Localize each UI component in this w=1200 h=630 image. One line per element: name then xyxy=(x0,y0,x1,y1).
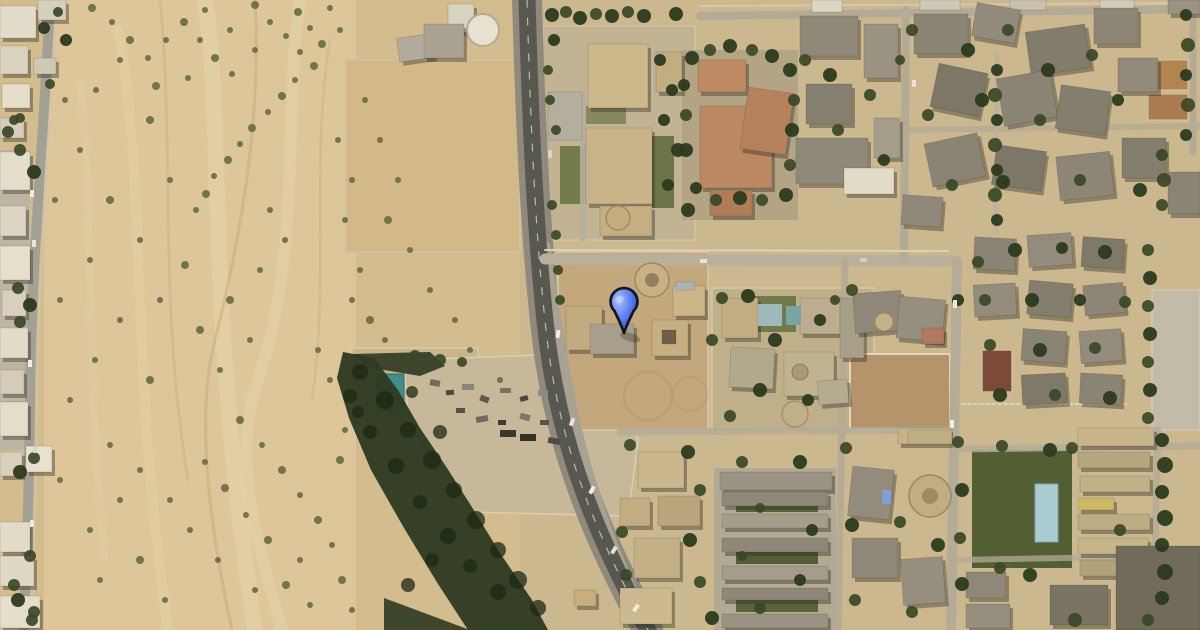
building xyxy=(740,87,794,155)
building xyxy=(620,588,672,624)
desert-shrub xyxy=(211,54,219,62)
building xyxy=(424,24,464,58)
desert-shrub xyxy=(181,261,189,269)
ground-object xyxy=(498,420,506,425)
tennis-court xyxy=(982,350,1012,392)
building xyxy=(722,538,828,552)
ground-object xyxy=(912,80,916,87)
tree xyxy=(783,63,797,77)
satellite-imagery xyxy=(0,0,1200,630)
building xyxy=(34,58,56,74)
building xyxy=(729,347,775,389)
tree xyxy=(1143,327,1157,341)
desert-shrub xyxy=(327,377,333,383)
tree xyxy=(1155,538,1169,552)
tree xyxy=(573,11,587,25)
desert-shrub xyxy=(327,5,333,11)
ground-object xyxy=(456,408,465,413)
desert-shrub xyxy=(197,37,203,43)
building xyxy=(1021,373,1067,405)
tree xyxy=(906,24,918,36)
tree xyxy=(1157,564,1173,580)
desert-shrub xyxy=(117,317,123,323)
building xyxy=(574,590,596,606)
tree xyxy=(1068,613,1082,627)
desert-shrub xyxy=(349,297,355,303)
tree xyxy=(1142,412,1154,424)
tree xyxy=(28,452,40,464)
building xyxy=(900,557,945,606)
tree xyxy=(840,442,852,454)
building xyxy=(0,152,30,190)
desert-shrub xyxy=(310,62,318,70)
desert-shrub xyxy=(377,137,383,143)
desert-shrub xyxy=(117,497,123,503)
building xyxy=(1078,514,1150,530)
building xyxy=(1094,8,1138,44)
grove-canopy xyxy=(490,584,506,600)
ground-object xyxy=(860,258,867,262)
tree xyxy=(694,484,706,496)
desert-shrub xyxy=(342,217,348,223)
tree xyxy=(846,284,858,296)
grove-canopy xyxy=(490,542,506,558)
desert-shrub xyxy=(497,377,503,383)
tree xyxy=(1008,243,1022,257)
building xyxy=(722,588,828,600)
building xyxy=(634,538,680,578)
tree xyxy=(681,203,695,217)
building xyxy=(817,379,849,405)
desert-shrub xyxy=(217,367,223,373)
tree xyxy=(1049,389,1061,401)
building xyxy=(0,246,30,280)
building xyxy=(800,16,858,56)
tree xyxy=(12,282,24,294)
tree xyxy=(1025,293,1039,307)
grove-canopy xyxy=(352,406,364,418)
satellite-map-canvas[interactable] xyxy=(0,0,1200,630)
tree xyxy=(724,410,736,422)
desert-shrub xyxy=(157,297,163,303)
building xyxy=(658,496,700,526)
grove-canopy xyxy=(376,391,394,409)
building xyxy=(1056,151,1114,200)
tree xyxy=(1074,294,1086,306)
building xyxy=(1078,428,1154,446)
tree xyxy=(993,388,1007,402)
desert-shrub xyxy=(227,27,233,33)
desert-shrub xyxy=(382,337,388,343)
tree xyxy=(1023,568,1037,582)
tree xyxy=(1133,183,1147,197)
building xyxy=(722,492,828,506)
tree xyxy=(975,93,989,107)
desert-shrub xyxy=(335,137,341,143)
tree xyxy=(741,289,755,303)
tree xyxy=(1098,245,1112,259)
hotel-dome xyxy=(606,206,630,230)
tree xyxy=(551,125,561,135)
tree xyxy=(690,182,702,194)
tree xyxy=(666,84,678,96)
building xyxy=(914,14,968,54)
building xyxy=(0,522,30,552)
tree xyxy=(1033,343,1047,357)
ground-object xyxy=(540,420,549,425)
tree xyxy=(736,456,748,468)
desert-shrub xyxy=(97,577,103,583)
building xyxy=(1055,85,1111,136)
tree xyxy=(45,79,55,89)
building xyxy=(1168,172,1200,214)
tree xyxy=(14,316,26,328)
desert-shrub xyxy=(237,141,243,147)
desert-shrub xyxy=(384,216,392,224)
desert-shrub xyxy=(211,173,217,179)
tree xyxy=(1155,485,1169,499)
tree xyxy=(1181,38,1195,52)
tree xyxy=(955,483,969,497)
round-plaza-core xyxy=(922,488,938,504)
desert-shrub xyxy=(187,527,193,533)
building xyxy=(966,572,1006,598)
tree xyxy=(680,109,692,121)
building xyxy=(620,498,650,526)
desert-shrub xyxy=(193,207,199,213)
desert-shrub xyxy=(349,177,355,183)
grove-canopy xyxy=(446,482,462,498)
tree xyxy=(788,94,800,106)
tree xyxy=(23,298,37,312)
tree xyxy=(753,383,767,397)
tree xyxy=(723,39,737,53)
building xyxy=(864,24,898,78)
tree xyxy=(1074,174,1086,186)
ground-object xyxy=(953,300,957,308)
tree xyxy=(1157,510,1173,526)
tree xyxy=(1157,457,1173,473)
tree xyxy=(1142,244,1154,256)
tree xyxy=(545,95,555,105)
tree xyxy=(710,194,722,206)
tree xyxy=(961,43,975,57)
tree xyxy=(954,532,966,544)
tree xyxy=(622,6,634,18)
tree xyxy=(754,602,766,614)
tree xyxy=(1180,69,1192,81)
tree xyxy=(814,314,826,326)
desert-shrub xyxy=(146,376,154,384)
tree xyxy=(543,65,553,75)
tree xyxy=(823,68,837,82)
desert-shrub xyxy=(292,77,298,83)
tree xyxy=(60,34,72,46)
tree xyxy=(984,339,996,351)
grove-canopy xyxy=(423,451,441,469)
tree xyxy=(996,175,1010,189)
building xyxy=(1116,546,1200,630)
desert-shrub xyxy=(259,442,265,448)
desert-shrub xyxy=(467,347,473,353)
building xyxy=(676,282,694,290)
tree xyxy=(784,159,796,171)
desert-shrub xyxy=(265,109,271,115)
tree xyxy=(658,114,670,126)
desert-shrub xyxy=(224,156,232,164)
building xyxy=(720,472,832,490)
pale-compound xyxy=(1152,290,1200,430)
building xyxy=(586,128,652,204)
grove-canopy xyxy=(401,578,415,592)
ground-object xyxy=(700,259,707,263)
tree xyxy=(694,576,706,588)
tree xyxy=(620,569,632,581)
tree xyxy=(669,7,683,21)
building xyxy=(844,168,894,194)
desert-shrub xyxy=(297,492,303,498)
ground-object xyxy=(500,388,511,393)
desert-shrub xyxy=(221,484,229,492)
tree xyxy=(637,9,651,23)
desert-shrub xyxy=(283,33,289,39)
desert-shrub xyxy=(137,467,143,473)
desert-shrub xyxy=(52,197,58,203)
desert-shrub xyxy=(126,36,134,44)
tree xyxy=(8,579,20,591)
mid-road xyxy=(545,259,950,261)
building xyxy=(698,60,746,92)
desert-shrub xyxy=(106,196,114,204)
tree xyxy=(1156,149,1168,161)
desert-shrub xyxy=(282,237,288,243)
desert-shrub xyxy=(109,19,115,25)
ground-object xyxy=(446,390,454,396)
tree xyxy=(24,550,36,562)
tree xyxy=(1142,356,1154,368)
desert-shrub xyxy=(342,427,348,433)
desert-shrub xyxy=(278,466,286,474)
building xyxy=(638,452,684,488)
tree xyxy=(590,8,602,20)
ground-object xyxy=(950,420,954,428)
building xyxy=(1083,282,1125,315)
building xyxy=(588,44,648,108)
tree xyxy=(1143,383,1157,397)
tree xyxy=(705,611,719,625)
desert-shrub xyxy=(318,40,326,48)
tree xyxy=(555,295,565,305)
desert-shrub xyxy=(162,597,168,603)
tree xyxy=(27,165,41,179)
tree xyxy=(1156,199,1168,211)
blue-structure xyxy=(882,490,891,504)
tree xyxy=(1119,296,1131,308)
building xyxy=(901,195,943,228)
tree xyxy=(806,524,818,536)
building xyxy=(0,6,36,38)
tree xyxy=(716,292,728,304)
tree xyxy=(1181,98,1195,112)
tree xyxy=(830,295,840,305)
desert-shrub xyxy=(329,542,335,548)
tree xyxy=(972,256,984,268)
desert-shrub xyxy=(267,207,273,213)
tree xyxy=(38,22,50,34)
ground-object xyxy=(30,520,34,527)
desert-shrub xyxy=(202,7,208,13)
tree xyxy=(662,179,674,191)
building xyxy=(662,330,676,344)
water-tank xyxy=(467,14,499,46)
ground-object xyxy=(520,434,536,441)
desert-shrub xyxy=(278,92,286,100)
building xyxy=(812,0,842,12)
tree xyxy=(793,455,807,469)
tree xyxy=(53,7,63,17)
desert-shrub xyxy=(87,257,93,263)
tree xyxy=(457,357,467,367)
tree xyxy=(894,516,906,528)
desert-shrub xyxy=(314,516,322,524)
desert-shrub xyxy=(243,512,249,518)
tree xyxy=(1089,342,1101,354)
ground-object xyxy=(500,430,516,437)
tree xyxy=(13,465,27,479)
tree xyxy=(14,144,26,156)
desert-shrub xyxy=(180,18,188,26)
tree xyxy=(1180,129,1192,141)
building xyxy=(0,370,24,394)
tree xyxy=(756,194,768,206)
tree xyxy=(849,594,861,606)
desert-shrub xyxy=(136,556,144,564)
ground-object xyxy=(538,390,548,397)
grove-canopy xyxy=(440,528,456,544)
tree xyxy=(845,518,859,532)
desert-shrub xyxy=(92,357,98,363)
tree xyxy=(1157,173,1171,187)
tree xyxy=(779,188,793,202)
tree xyxy=(1066,442,1078,454)
tree xyxy=(1041,63,1055,77)
desert-shrub xyxy=(452,317,458,323)
desert-shrub xyxy=(251,1,259,9)
tree xyxy=(765,49,779,63)
tree xyxy=(1180,9,1192,21)
desert-shrub xyxy=(229,71,235,77)
building xyxy=(1118,58,1158,92)
desert-shrub xyxy=(294,8,302,16)
round-building-core xyxy=(645,273,659,287)
tree xyxy=(551,230,561,240)
tree xyxy=(1143,271,1157,285)
desert-shrub xyxy=(407,247,413,253)
desert-shrub xyxy=(297,557,303,563)
desert-shrub xyxy=(202,190,210,198)
grove-canopy xyxy=(509,571,527,589)
grove-canopy xyxy=(343,389,357,403)
hotel-lawn-2 xyxy=(652,136,674,208)
tree xyxy=(1002,24,1014,36)
building xyxy=(0,402,28,436)
tree xyxy=(931,538,945,552)
desert-shrub xyxy=(427,287,433,293)
tree xyxy=(616,526,628,538)
tree xyxy=(706,334,718,346)
desert-shrub xyxy=(117,57,123,63)
court-blue-2 xyxy=(786,306,801,325)
tree xyxy=(1114,524,1126,536)
grove-canopy xyxy=(406,386,418,398)
tree xyxy=(678,79,690,91)
desert-shrub xyxy=(264,536,272,544)
desert-shrub xyxy=(163,37,169,43)
desert-shrub xyxy=(337,27,343,33)
tree xyxy=(737,551,747,561)
tree xyxy=(434,354,446,366)
court-blue-1 xyxy=(758,304,782,326)
ground-object xyxy=(32,240,36,247)
ground-object xyxy=(30,190,34,197)
tree xyxy=(547,200,557,210)
desert-shrub xyxy=(252,587,258,593)
desert-shrub xyxy=(93,87,99,93)
desert-shrub xyxy=(202,459,208,465)
tree xyxy=(991,114,1003,126)
building xyxy=(722,614,828,628)
tree xyxy=(1056,242,1068,254)
tree xyxy=(895,55,905,65)
tree xyxy=(545,8,559,22)
building xyxy=(806,84,852,124)
building xyxy=(1079,329,1123,364)
wall-mid xyxy=(545,250,948,251)
desert-shrub xyxy=(87,527,93,533)
building xyxy=(966,604,1010,628)
tree xyxy=(991,214,1003,226)
grove-canopy xyxy=(467,511,485,529)
swimming-pool xyxy=(1035,484,1058,542)
tree xyxy=(1155,433,1169,447)
ground-object xyxy=(462,384,474,390)
fenced-lot xyxy=(346,60,520,252)
building xyxy=(852,538,898,578)
dirt-field xyxy=(850,354,950,430)
tree xyxy=(548,34,560,46)
desert-shrub xyxy=(315,347,321,353)
desert-shrub xyxy=(307,25,313,31)
grove-canopy xyxy=(463,559,477,573)
tree xyxy=(11,593,25,607)
grove-canopy xyxy=(433,425,447,439)
tree xyxy=(996,440,1008,452)
tree xyxy=(864,89,876,101)
grove-canopy xyxy=(388,458,404,474)
tree xyxy=(922,109,934,121)
tree xyxy=(799,54,811,66)
desert-shrub xyxy=(252,47,258,53)
desert-shrub xyxy=(107,442,113,448)
tree xyxy=(991,64,1003,76)
desert-shrub xyxy=(257,267,263,273)
tree xyxy=(624,439,636,451)
desert-shrub xyxy=(167,177,173,183)
grove-canopy xyxy=(425,553,439,567)
desert-shrub xyxy=(137,237,143,243)
tree xyxy=(1142,614,1154,626)
tree xyxy=(605,9,619,23)
